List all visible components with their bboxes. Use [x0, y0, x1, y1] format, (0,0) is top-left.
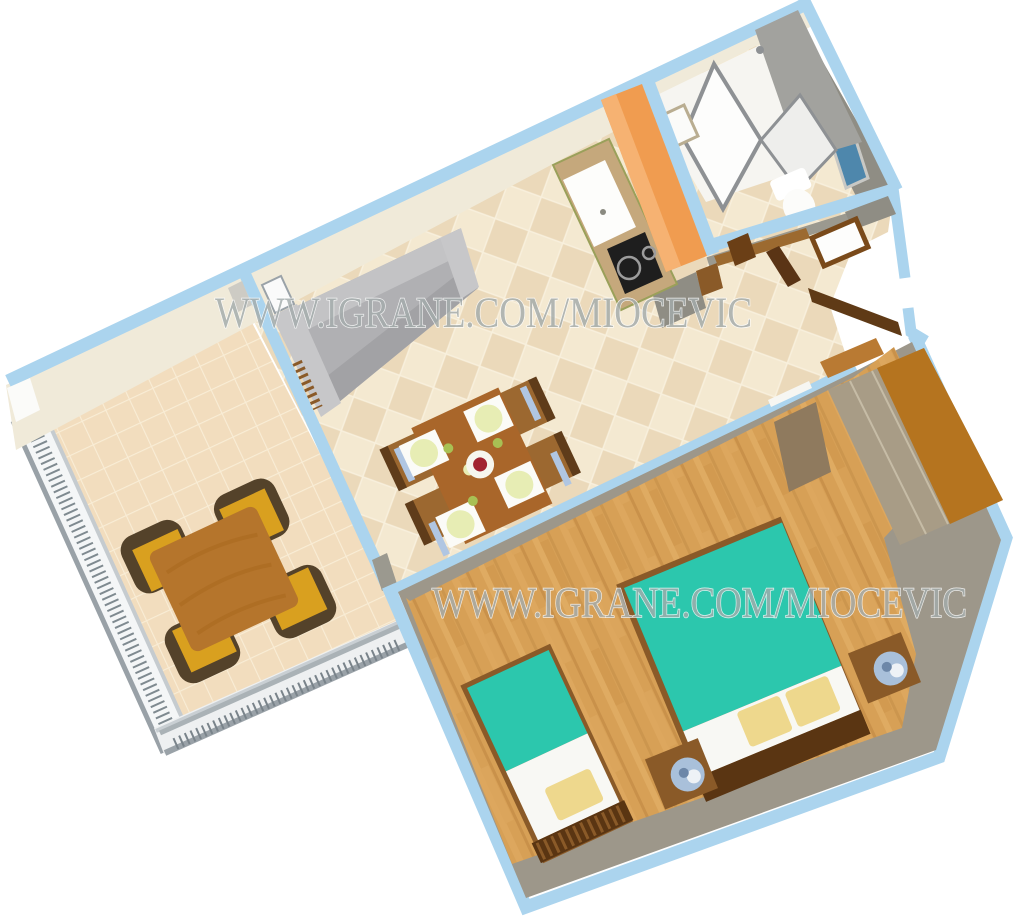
svg-text:WWW.IGRANE.COM/MIOCEVIC: WWW.IGRANE.COM/MIOCEVIC	[215, 290, 752, 337]
svg-text:WWW.IGRANE.COM/MIOCEVIC: WWW.IGRANE.COM/MIOCEVIC	[432, 580, 967, 627]
